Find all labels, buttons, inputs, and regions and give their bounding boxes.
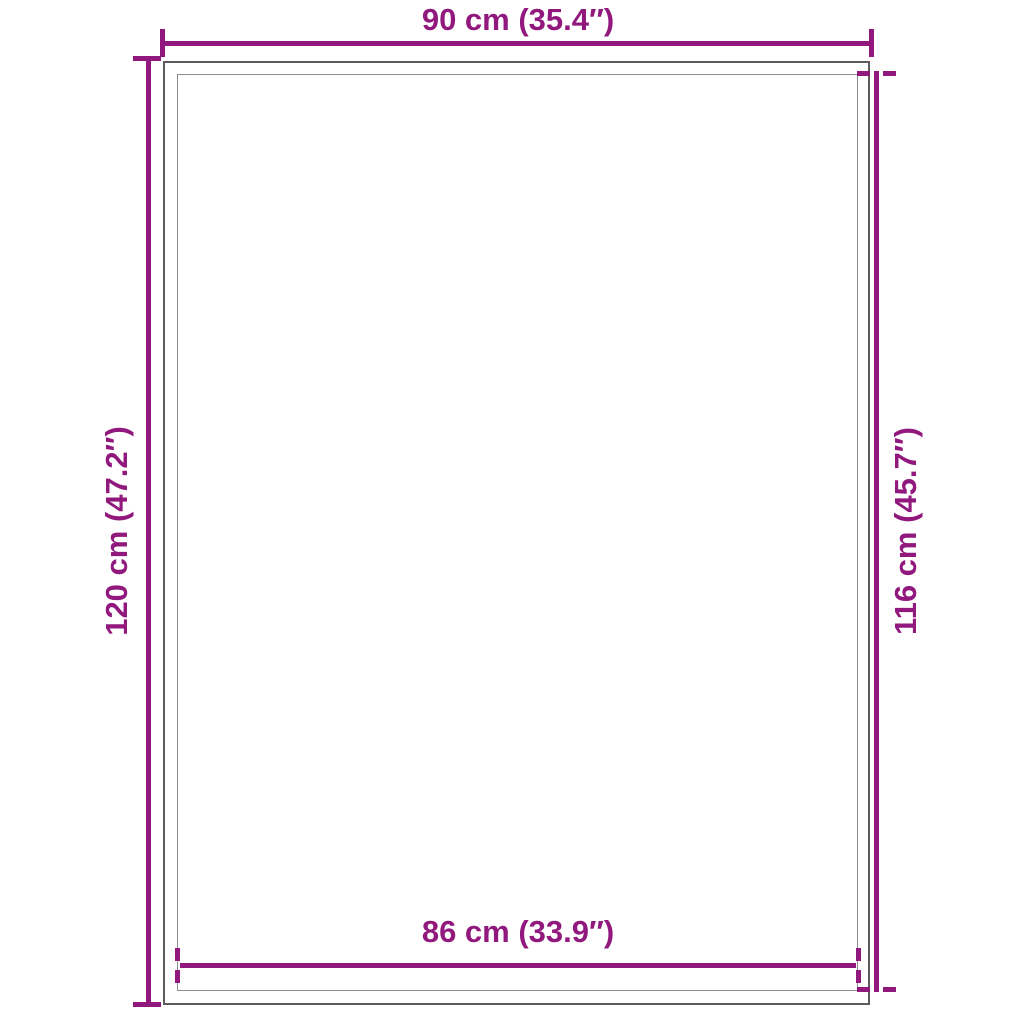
dim-right-label: 116 cm (45.7″) — [886, 231, 926, 831]
tick-segment — [175, 948, 180, 961]
tick-segment — [883, 987, 896, 992]
dim-top-line — [161, 41, 873, 46]
dim-top-tick-right — [869, 29, 874, 57]
dim-right-line — [874, 71, 879, 992]
tick-segment — [857, 71, 870, 76]
tick-segment — [857, 987, 870, 992]
dim-left-label: 120 cm (47.2″) — [97, 231, 137, 831]
mat-inner-outline — [177, 74, 858, 991]
dim-left-tick-bottom — [133, 1002, 161, 1007]
dim-bottom-line — [180, 963, 856, 968]
dimension-diagram: 90 cm (35.4″) 120 cm (47.2″) 116 cm (45.… — [0, 0, 1024, 1024]
dim-top-tick-left — [160, 29, 165, 57]
tick-segment — [175, 970, 180, 983]
dim-top-label: 90 cm (35.4″) — [163, 0, 873, 40]
dim-left-tick-top — [133, 56, 161, 61]
tick-segment — [856, 970, 861, 983]
tick-segment — [883, 71, 896, 76]
dim-bottom-label: 86 cm (33.9″) — [181, 912, 855, 952]
dim-left-line — [146, 56, 151, 1007]
tick-segment — [856, 948, 861, 961]
